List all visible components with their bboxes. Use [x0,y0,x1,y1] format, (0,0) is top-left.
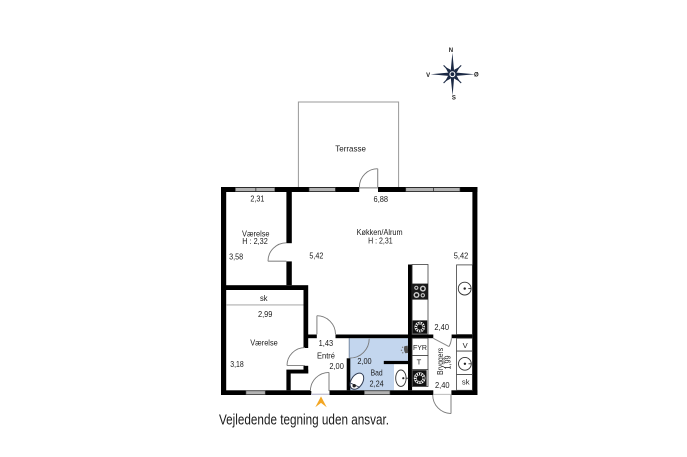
svg-text:6,88: 6,88 [374,194,389,204]
svg-text:Bad: Bad [371,368,383,378]
svg-text:sk: sk [260,293,268,303]
svg-text:2,99: 2,99 [258,309,273,319]
svg-text:T: T [417,358,422,367]
svg-text:1,99: 1,99 [442,355,452,369]
svg-text:5,42: 5,42 [454,251,469,261]
svg-text:V: V [426,73,430,79]
svg-text:sk: sk [462,378,470,387]
svg-text:S: S [452,95,456,101]
svg-text:1,43: 1,43 [319,338,334,348]
svg-text:2,24: 2,24 [369,379,384,389]
svg-text:Vejledende tegning uden ansvar: Vejledende tegning uden ansvar. [219,411,389,428]
svg-text:2,00: 2,00 [329,361,344,371]
svg-text:FYR: FYR [413,343,427,352]
svg-text:2,00: 2,00 [357,356,372,366]
svg-text:2,31: 2,31 [250,193,264,203]
svg-text:Entré: Entré [317,351,335,361]
svg-text:Værelse: Værelse [250,337,278,347]
svg-text:3,58: 3,58 [229,252,243,262]
svg-text:2,40: 2,40 [435,380,450,390]
svg-text:3,18: 3,18 [230,359,244,369]
svg-text:N: N [449,48,453,54]
svg-text:Terrasse: Terrasse [335,143,366,153]
svg-text:H : 2,32: H : 2,32 [242,236,268,246]
svg-text:2,40: 2,40 [434,322,449,332]
svg-text:Ø: Ø [474,72,479,78]
svg-text:H : 2,31: H : 2,31 [368,236,393,246]
svg-text:5,42: 5,42 [309,251,323,261]
